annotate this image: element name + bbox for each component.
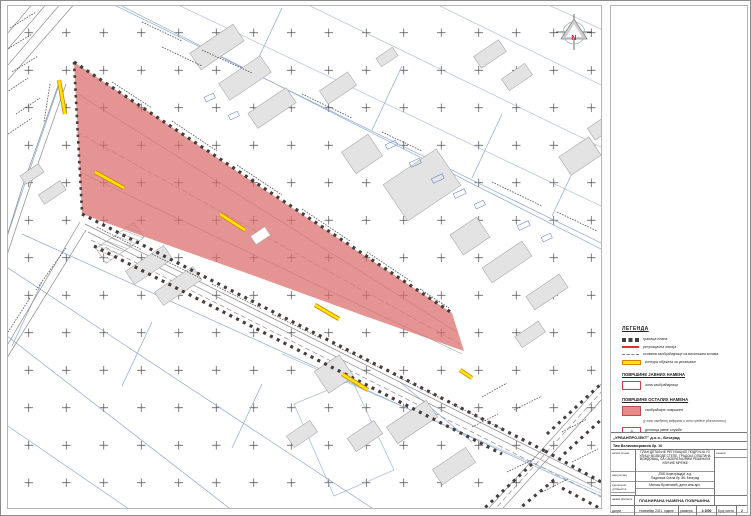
legend-item-demolition: контура објеката за уклањање [622,360,742,365]
legend-item-regulation-line: регулациона линија [622,346,742,350]
road-axis-swatch [622,354,639,355]
plan-map-canvas: N [8,6,601,508]
scale-value: 1:1000 [697,506,717,515]
label-scale: размера [679,506,697,515]
label-drawing-name: назив прилога [611,496,635,505]
legend-label: граница плана [643,338,667,342]
empty-cell [611,493,635,495]
client-name: „ПКБ Корпорација” а.д. Падинска Скела бр… [636,472,714,482]
label-date: датум [611,506,635,515]
title-block-footer: датум Новембар 2021. године размера 1:10… [611,506,747,515]
road-zone-swatch [622,381,641,390]
label-sheet: Број листа [717,506,737,515]
traffic-area-swatch [622,406,641,416]
drawing-name: ПЛАНИРАНА НАМЕНА ПОВРШИНА [635,496,715,505]
demolition-swatch [622,360,641,365]
legend-label: контура објеката за уклањање [645,361,696,365]
legend-label: зона саобраћајнице [645,384,678,388]
title-block-company: „УРБАНПРОЈЕКТ” д.о.о., Београд [611,433,747,442]
regulation-line-swatch [622,346,639,348]
drawing-name-row: назив прилога ПЛАНИРАНА НАМЕНА ПОВРШИНА [611,496,747,506]
legend-section-other: ПОВРШИНЕ ОСТАЛИХ НАМЕНА [622,397,742,402]
title-block-grid: назив плана наручилац одговорни урбанист… [611,450,747,496]
sheet-value: 2 [737,506,747,515]
empty-cell [715,496,747,505]
legend-item-road-axis: осовина саобраћајнице са висинским котам… [622,353,742,357]
map-frame: N [7,5,602,509]
client-line2: Падинска Скела бр. 86, Београд [637,477,713,481]
legend-note: (у зони омеђеној задругом и зони средње … [643,420,742,424]
date-value: Новембар 2021. године [635,506,679,515]
label-plan-name: назив плана [611,450,635,472]
plan-sheet: N ЛЕГЕНДА граница плана регулациона лини… [0,0,751,516]
urbanist-name: Милош Вученовић, дипл.инж.арх. [636,482,714,489]
legend: ЛЕГЕНДА граница плана регулациона линија… [622,326,742,446]
legend-item-road-zone: зона саобраћајнице [622,381,742,390]
title-block-subtitle: Тим Великоморавска бр. 10 [611,442,747,450]
legend-label: саобраћајне површине [645,409,683,413]
legend-label: регулациона линија [643,346,676,350]
right-panel: ЛЕГЕНДА граница плана регулациона линија… [610,5,748,513]
legend-label: осовина саобраћајнице са висинским котам… [643,353,718,357]
plan-name: ПЛАН ДЕТАЉНЕ РЕГУЛАЦИЈЕ ПОДРУЧЈА УЗ УЛИЦ… [636,450,714,472]
label-mark: ознака [715,450,747,458]
empty-cell [636,489,714,495]
label-urbanist: одговорни урбаниста [611,482,635,493]
legend-item-plan-boundary: граница плана [622,338,742,342]
north-label: N [571,35,576,42]
title-block: „УРБАНПРОЈЕКТ” д.о.о., Београд Тим Велик… [611,432,747,512]
legend-title: ЛЕГЕНДА [622,326,742,332]
legend-item-traffic-area: саобраћајне површине [622,406,742,416]
label-client: наручилац [611,472,635,482]
plan-boundary-swatch [622,338,639,342]
empty-cell [715,458,747,495]
legend-section-public: ПОВРШИНЕ ЈАВНИХ НАМЕНА [622,372,742,377]
